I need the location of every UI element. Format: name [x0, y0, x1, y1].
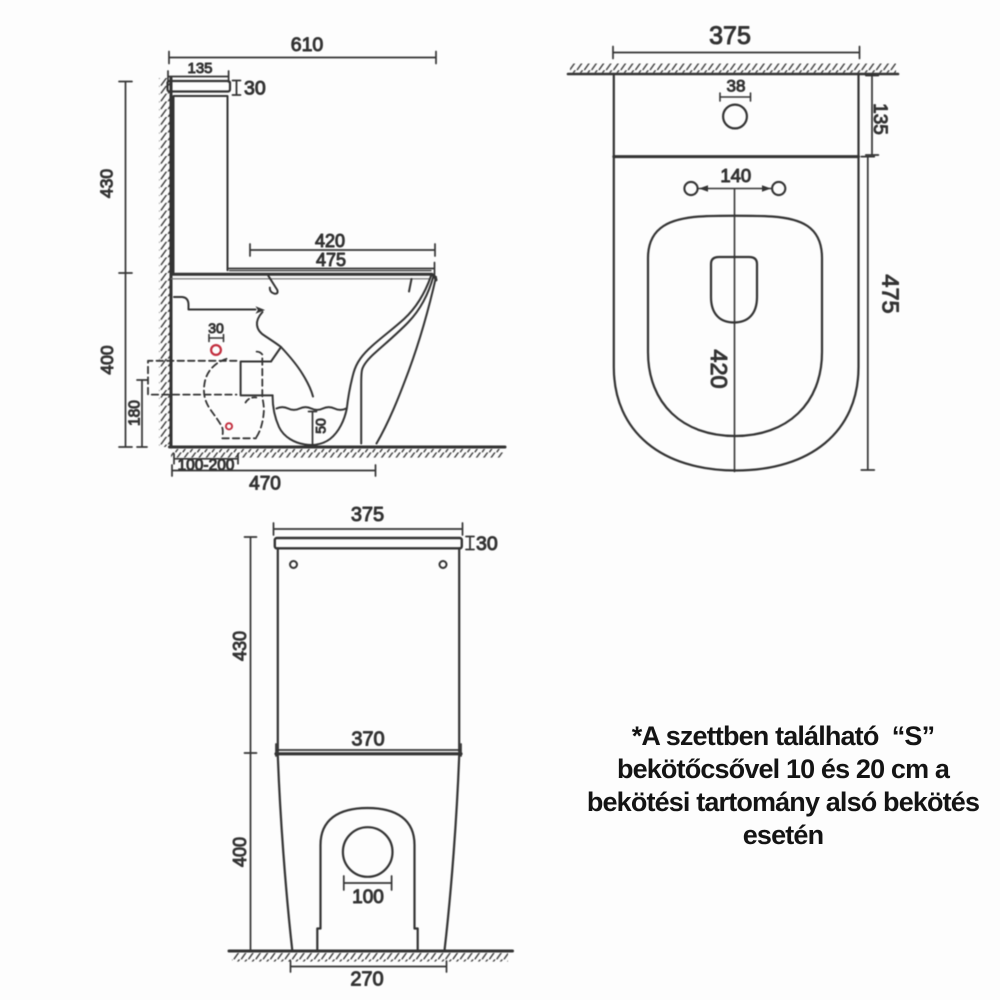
svg-text:135: 135: [869, 103, 890, 135]
svg-text:420: 420: [706, 349, 732, 388]
svg-text:400: 400: [230, 837, 250, 867]
svg-text:140: 140: [720, 165, 751, 186]
svg-text:375: 375: [709, 22, 751, 50]
svg-text:400: 400: [97, 345, 117, 374]
svg-text:30: 30: [244, 78, 266, 100]
svg-text:420: 420: [315, 231, 345, 251]
svg-text:30: 30: [476, 533, 498, 555]
svg-text:475: 475: [877, 274, 903, 313]
svg-text:370: 370: [351, 729, 384, 751]
svg-text:470: 470: [249, 474, 281, 495]
svg-text:50: 50: [312, 418, 328, 434]
svg-text:270: 270: [350, 969, 383, 991]
svg-text:135: 135: [187, 60, 212, 77]
svg-text:375: 375: [351, 504, 384, 526]
svg-text:430: 430: [97, 169, 117, 198]
svg-text:610: 610: [291, 34, 324, 56]
svg-text:430: 430: [230, 631, 250, 661]
svg-text:180: 180: [126, 400, 143, 426]
svg-text:475: 475: [316, 250, 346, 270]
svg-text:100-200: 100-200: [178, 457, 235, 474]
svg-text:30: 30: [208, 320, 224, 336]
svg-text:38: 38: [727, 77, 746, 96]
svg-text:100: 100: [352, 887, 384, 908]
